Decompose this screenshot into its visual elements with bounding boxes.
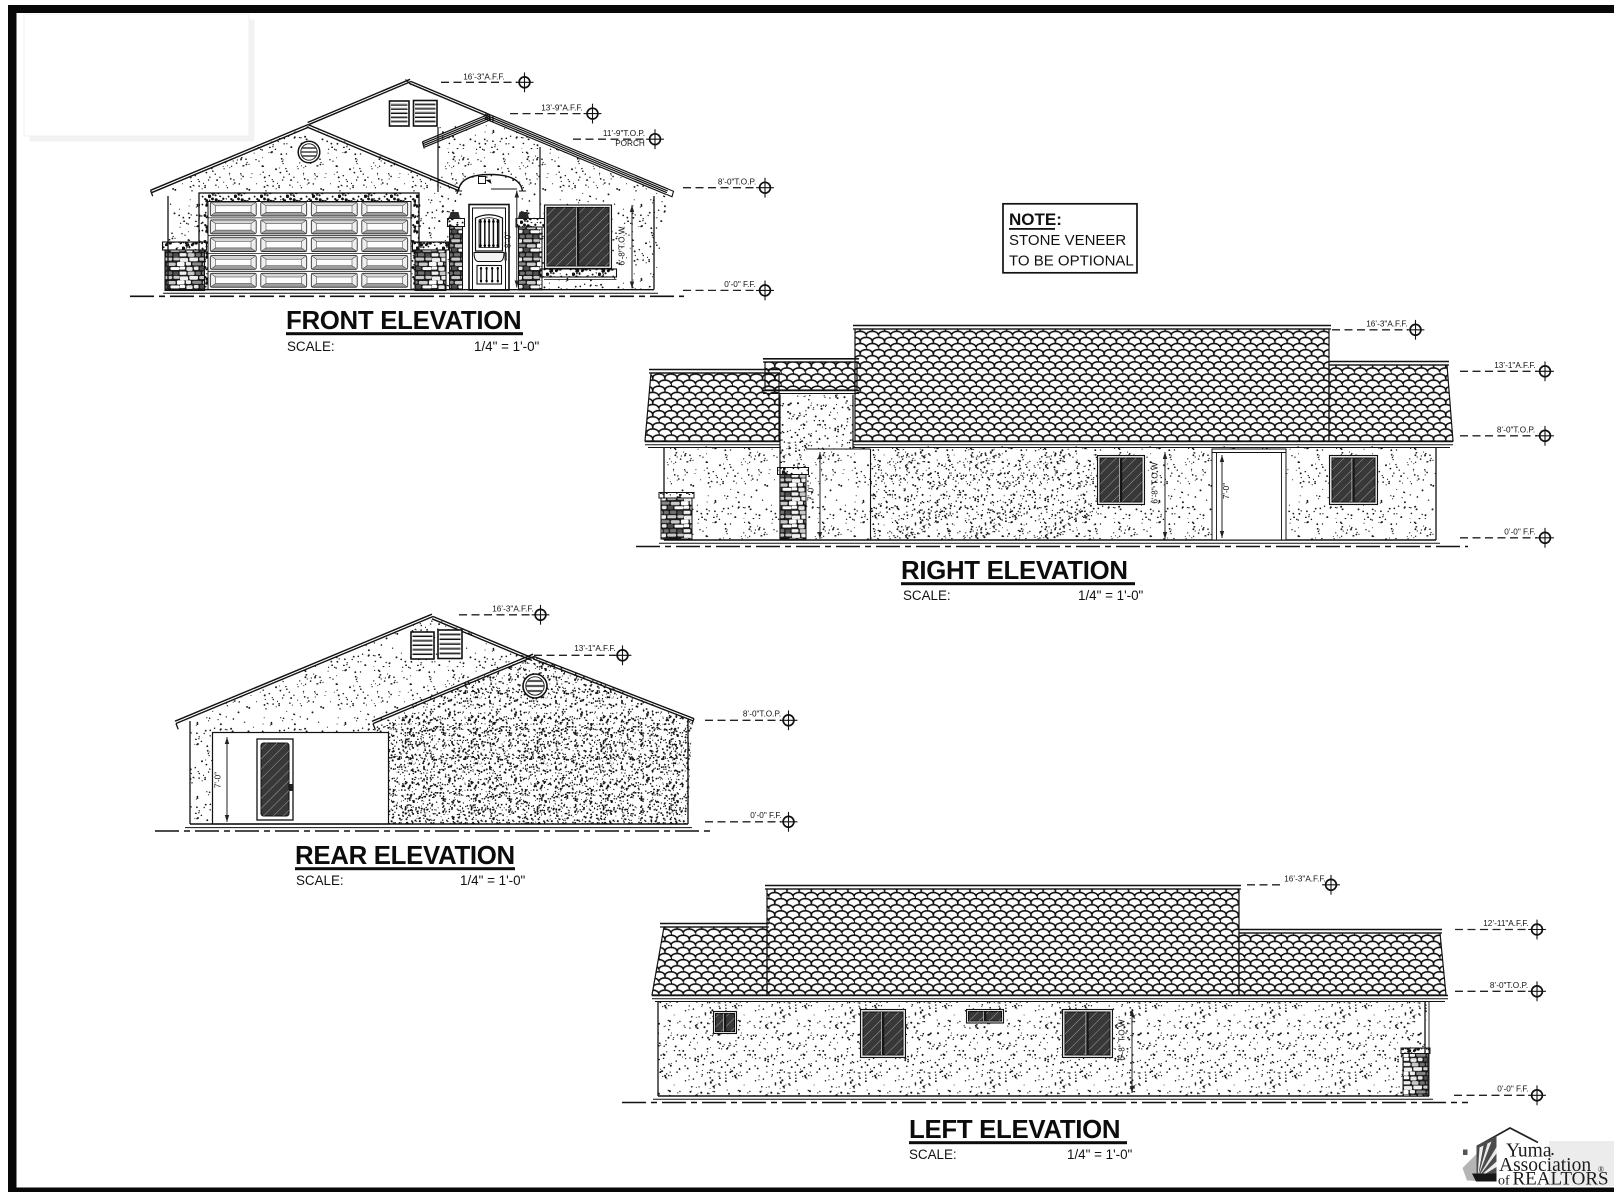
svg-text:FRONT ELEVATION: FRONT ELEVATION [286, 307, 521, 335]
svg-text:STONE VENEER: STONE VENEER [1009, 232, 1126, 249]
svg-text:RIGHT ELEVATION: RIGHT ELEVATION [901, 557, 1128, 585]
svg-text:0’-0" F.F.: 0’-0" F.F. [1497, 1084, 1529, 1093]
svg-text:REAR ELEVATION: REAR ELEVATION [295, 842, 515, 870]
svg-text:16’-3"A.F.F.: 16’-3"A.F.F. [463, 73, 505, 82]
svg-text:SCALE:: SCALE: [287, 339, 335, 354]
svg-text:PORCH: PORCH [615, 139, 645, 148]
svg-text:SCALE:: SCALE: [296, 873, 344, 888]
svg-text:1/4" = 1'-0": 1/4" = 1'-0" [1078, 588, 1144, 603]
svg-text:13’-1"A.F.F.: 13’-1"A.F.F. [1494, 361, 1536, 370]
svg-text:7'-0": 7'-0" [1222, 483, 1231, 499]
svg-text:6'-8" T.O.W: 6'-8" T.O.W [1118, 1019, 1127, 1060]
svg-text:TO BE OPTIONAL: TO BE OPTIONAL [1009, 253, 1134, 270]
svg-text:8’-0"T.O.P.: 8’-0"T.O.P. [718, 177, 756, 186]
svg-text:7'-0": 7'-0" [807, 485, 816, 501]
svg-text:16’-3"A.F.F.: 16’-3"A.F.F. [1284, 874, 1326, 883]
svg-text:8’-0"T.O.P.: 8’-0"T.O.P. [1490, 981, 1528, 990]
svg-text:®: ® [1598, 1165, 1604, 1174]
svg-text:1/4" = 1'-0": 1/4" = 1'-0" [1067, 1147, 1133, 1162]
svg-text:6'-8"T.O.W: 6'-8"T.O.W [618, 226, 627, 265]
svg-text:1/4" = 1'-0": 1/4" = 1'-0" [460, 873, 526, 888]
svg-text:6'-8" T.O.W: 6'-8" T.O.W [1151, 462, 1160, 503]
svg-text:REALTORS: REALTORS [1513, 1169, 1609, 1190]
svg-text:16’-3"A.F.F.: 16’-3"A.F.F. [1366, 319, 1408, 328]
svg-text:0’-0" F.F.: 0’-0" F.F. [750, 811, 782, 820]
svg-text:LEFT ELEVATION: LEFT ELEVATION [909, 1116, 1120, 1144]
svg-text:12’-11"A.F.F.: 12’-11"A.F.F. [1483, 919, 1529, 928]
svg-text:1/4" = 1'-0": 1/4" = 1'-0" [474, 339, 540, 354]
svg-text:13’-9"A.F.F.: 13’-9"A.F.F. [541, 104, 583, 113]
svg-text:16’-3"A.F.F.: 16’-3"A.F.F. [492, 604, 534, 613]
svg-text:8’-0"T.O.P.: 8’-0"T.O.P. [1497, 425, 1535, 434]
svg-text:8'-0": 8'-0" [504, 232, 513, 248]
svg-text:SCALE:: SCALE: [909, 1147, 957, 1162]
svg-text:SCALE:: SCALE: [903, 588, 951, 603]
svg-text:0’-0" F.F.: 0’-0" F.F. [1504, 527, 1536, 536]
svg-text:8’-0"T.O.P.: 8’-0"T.O.P. [743, 709, 781, 718]
svg-text:0’-0" F.F.: 0’-0" F.F. [724, 280, 756, 289]
svg-text:NOTE:: NOTE: [1009, 210, 1062, 229]
svg-text:13’-1"A.F.F.: 13’-1"A.F.F. [574, 644, 616, 653]
svg-text:of: of [1498, 1174, 1510, 1189]
svg-text:7'-0": 7'-0" [214, 772, 223, 788]
svg-text:11’-9"T.O.P.: 11’-9"T.O.P. [603, 129, 645, 138]
